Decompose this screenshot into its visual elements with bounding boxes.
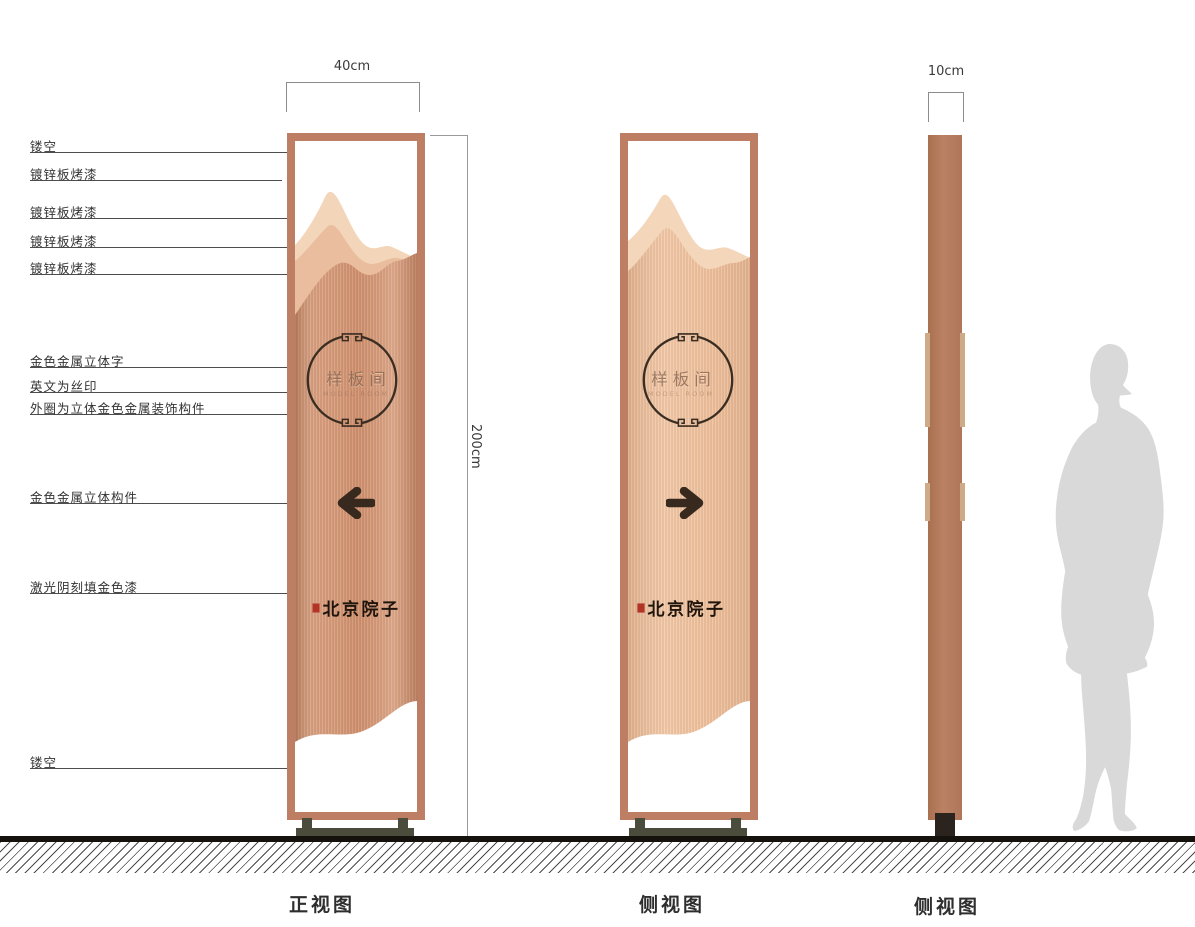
side-view-sign-frame: [620, 133, 758, 820]
annotation-label: 金色金属立体字: [30, 351, 320, 372]
annotation: 镀锌板烤漆: [30, 231, 291, 248]
annotation: 激光阴刻填金色漆: [30, 577, 287, 594]
annotation: 镀锌板烤漆: [30, 164, 282, 181]
front-panel-artwork: [295, 141, 417, 812]
annotation: 外圈为立体金色金属装饰构件: [30, 398, 311, 415]
human-scale-figure: [1038, 340, 1180, 838]
profile-width-dimension: 10cm: [921, 64, 971, 79]
caption-front-view: 正视图: [267, 890, 377, 917]
annotation: 镀锌板烤漆: [30, 258, 293, 275]
annotation: 镀锌板烤漆: [30, 202, 322, 219]
direction-arrow-right-icon: [666, 487, 710, 519]
side-brand-text: 北京院子: [648, 595, 726, 620]
height-dim-line: [467, 135, 468, 837]
annotation: 金色金属立体字: [30, 351, 320, 368]
annotation-label: 镂空: [30, 136, 305, 157]
height-dim-tick: [430, 135, 467, 136]
side-circle-text: 样板间: [620, 366, 742, 390]
front-circle-subtext: MODEL ROOM: [295, 390, 417, 398]
panel-body-shading: [628, 228, 750, 742]
annotation-label: 激光阴刻填金色漆: [30, 577, 287, 598]
profile-view-bar: [928, 135, 962, 820]
profile-trim-upper-right: [960, 333, 965, 427]
profile-base-foot: [935, 813, 955, 838]
profile-trim-lower-left: [925, 483, 930, 521]
red-seal-icon: [312, 603, 320, 613]
side-circle-subtext: MODEL ROOM: [620, 390, 742, 398]
front-brand: 北京院子: [295, 595, 417, 620]
annotation: 镂空: [30, 136, 305, 153]
side-brand: 北京院子: [620, 595, 742, 620]
annotation-label: 镀锌板烤漆: [30, 231, 291, 252]
front-width-bracket: [286, 82, 420, 112]
side-panel-artwork: [628, 141, 750, 812]
profile-width-bracket: [928, 92, 964, 122]
design-drawing-canvas: 镂空镀锌板烤漆镀锌板烤漆镀锌板烤漆镀锌板烤漆金色金属立体字英文为丝印外圈为立体金…: [0, 0, 1195, 927]
caption-profile-view: 侧视图: [892, 892, 1002, 919]
front-width-dimension: 40cm: [302, 59, 402, 74]
profile-trim-upper-left: [925, 333, 930, 427]
annotation-label: 外圈为立体金色金属装饰构件: [30, 398, 311, 419]
annotation-label: 镀锌板烤漆: [30, 258, 293, 279]
annotation: 镂空: [30, 752, 302, 769]
ground-hatch: [0, 842, 1195, 873]
profile-trim-lower-right: [960, 483, 965, 521]
annotation-label: 镀锌板烤漆: [30, 164, 282, 185]
direction-arrow-left-icon: [331, 487, 375, 519]
annotation-label: 镂空: [30, 752, 302, 773]
height-dimension: 200cm: [468, 424, 483, 469]
annotation-label: 镀锌板烤漆: [30, 202, 322, 223]
front-view-sign-frame: [287, 133, 425, 820]
front-circle-text: 样板间: [295, 366, 417, 390]
front-brand-text: 北京院子: [323, 595, 401, 620]
caption-side-view: 侧视图: [617, 890, 727, 917]
red-seal-icon: [637, 603, 645, 613]
